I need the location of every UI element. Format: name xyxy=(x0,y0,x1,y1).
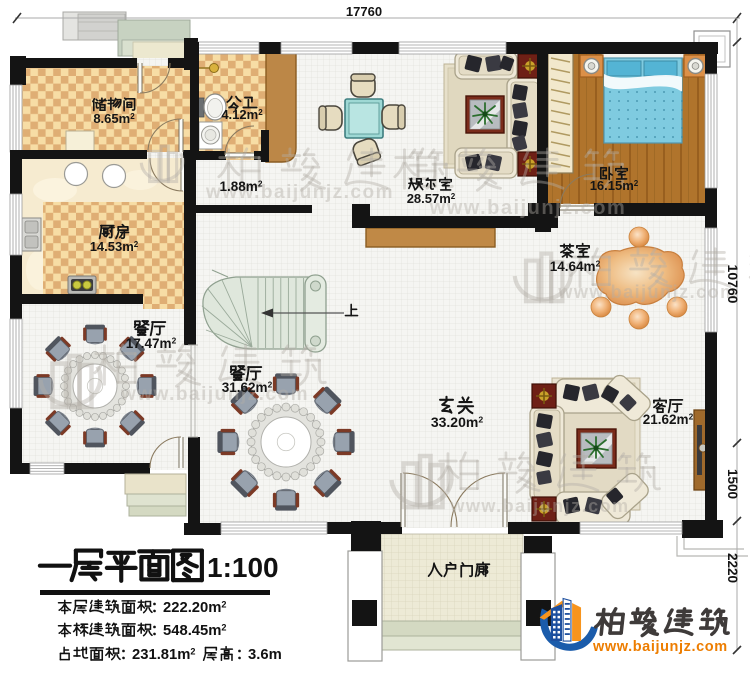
svg-text:17760: 17760 xyxy=(346,4,382,19)
svg-text:548.45m2: 548.45m2 xyxy=(163,622,227,639)
svg-text:www.baijunjz.com: www.baijunjz.com xyxy=(120,384,309,405)
svg-text:33.20m2: 33.20m2 xyxy=(431,414,483,430)
svg-text:www.baijunjz.com: www.baijunjz.com xyxy=(449,496,629,516)
svg-text:www.baijunjz.com: www.baijunjz.com xyxy=(557,282,737,302)
svg-text:14.64m2: 14.64m2 xyxy=(550,259,601,274)
svg-text:8.65m2: 8.65m2 xyxy=(93,111,135,126)
svg-text:31.62m2: 31.62m2 xyxy=(222,380,273,395)
svg-text:16.15m2: 16.15m2 xyxy=(590,178,639,193)
svg-text:1500: 1500 xyxy=(725,469,740,499)
svg-text:www.baijunjz.com: www.baijunjz.com xyxy=(592,639,728,655)
svg-text:3.6m: 3.6m xyxy=(248,647,282,663)
svg-text:10760: 10760 xyxy=(725,265,741,304)
svg-text:1:100: 1:100 xyxy=(207,552,279,583)
svg-text:www.baijunjz.com: www.baijunjz.com xyxy=(429,197,627,219)
svg-text:21.62m2: 21.62m2 xyxy=(643,412,694,427)
svg-text:4.12m2: 4.12m2 xyxy=(221,107,263,122)
svg-text:14.53m2: 14.53m2 xyxy=(90,239,139,254)
svg-text:17.47m2: 17.47m2 xyxy=(126,336,177,351)
svg-text:1.88m2: 1.88m2 xyxy=(220,179,263,194)
svg-text:28.57m2: 28.57m2 xyxy=(407,191,456,206)
svg-text:222.20m2: 222.20m2 xyxy=(163,599,227,616)
svg-text:2220: 2220 xyxy=(725,553,740,583)
svg-text:231.81m2: 231.81m2 xyxy=(132,646,196,663)
